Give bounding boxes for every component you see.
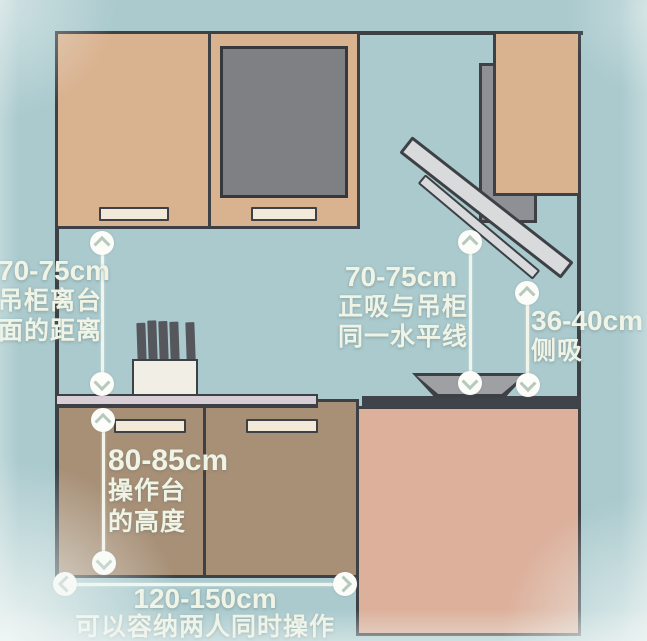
- annotation-hood-level-line2: 同一水平线: [338, 322, 464, 352]
- knife-block: [132, 359, 198, 396]
- measure-side-hood-arrow-bottom: [516, 373, 540, 397]
- annotation-counter-width: 120-150cm 可以容纳两人同时操作: [40, 585, 370, 641]
- chevron-down-icon: [96, 553, 113, 570]
- wall-cabinet-right: [493, 31, 581, 196]
- measure-hood-level-arrow-top: [458, 230, 482, 254]
- chevron-up-icon: [94, 236, 111, 253]
- measure-hood-level-arrow-bottom: [458, 371, 482, 395]
- knife-set-icon: [136, 319, 197, 363]
- annotation-side-hood-line1: 侧吸: [531, 336, 643, 366]
- kitchen-dimensions-diagram: 70-75cm 吊柜离台 面的距离 70-75cm 正吸与吊柜 同一水平线 36…: [0, 0, 647, 641]
- chevron-up-icon: [95, 413, 112, 430]
- annotation-hood-level: 70-75cm 正吸与吊柜 同一水平线: [338, 262, 464, 352]
- chevron-up-icon: [462, 235, 479, 252]
- measure-cabinet-gap-arrow-bottom: [90, 372, 114, 396]
- measure-cabinet-gap-arrow-top: [90, 231, 114, 255]
- wall-cabinet-left: [55, 31, 211, 229]
- annotation-cabinet-gap-line2: 面的距离: [0, 316, 110, 346]
- annotation-counter-width-value: 120-150cm: [40, 585, 370, 613]
- annotation-cabinet-gap-line1: 吊柜离台: [0, 286, 110, 316]
- measure-counter-height-arrow-bottom: [92, 551, 116, 575]
- annotation-hood-level-line1: 正吸与吊柜: [338, 292, 464, 322]
- annotation-counter-height-line2: 的高度: [108, 507, 228, 538]
- annotation-hood-level-value: 70-75cm: [338, 262, 464, 292]
- wall-cabinet-left-handle: [99, 207, 169, 221]
- measure-counter-height-arrow-top: [91, 408, 115, 432]
- chevron-up-icon: [519, 286, 536, 303]
- left-countertop: [55, 394, 318, 408]
- annotation-counter-width-line1: 可以容纳两人同时操作: [40, 613, 370, 641]
- base-cabinet-right: [356, 406, 581, 636]
- annotation-side-hood-value: 36-40cm: [531, 306, 643, 336]
- measure-side-hood-line: [526, 293, 529, 385]
- chevron-down-icon: [520, 375, 537, 392]
- annotation-counter-height-value: 80-85cm: [108, 445, 228, 476]
- measure-side-hood-arrow-top: [515, 281, 539, 305]
- annotation-side-hood: 36-40cm 侧吸: [531, 306, 643, 366]
- measure-hood-level-line: [469, 242, 472, 383]
- base-cabinet-left-handle-2: [246, 419, 318, 433]
- measure-counter-height-line: [102, 420, 105, 563]
- glass-panel: [220, 46, 348, 198]
- chevron-down-icon: [462, 373, 479, 390]
- base-cabinet-left-handle-1: [114, 419, 186, 433]
- annotation-counter-height: 80-85cm 操作台 的高度: [108, 445, 228, 538]
- annotation-cabinet-gap: 70-75cm 吊柜离台 面的距离: [0, 256, 110, 346]
- wall-cabinet-middle-handle: [251, 207, 317, 221]
- annotation-cabinet-gap-value: 70-75cm: [0, 256, 110, 286]
- chevron-down-icon: [94, 374, 111, 391]
- annotation-counter-height-line1: 操作台: [108, 476, 228, 507]
